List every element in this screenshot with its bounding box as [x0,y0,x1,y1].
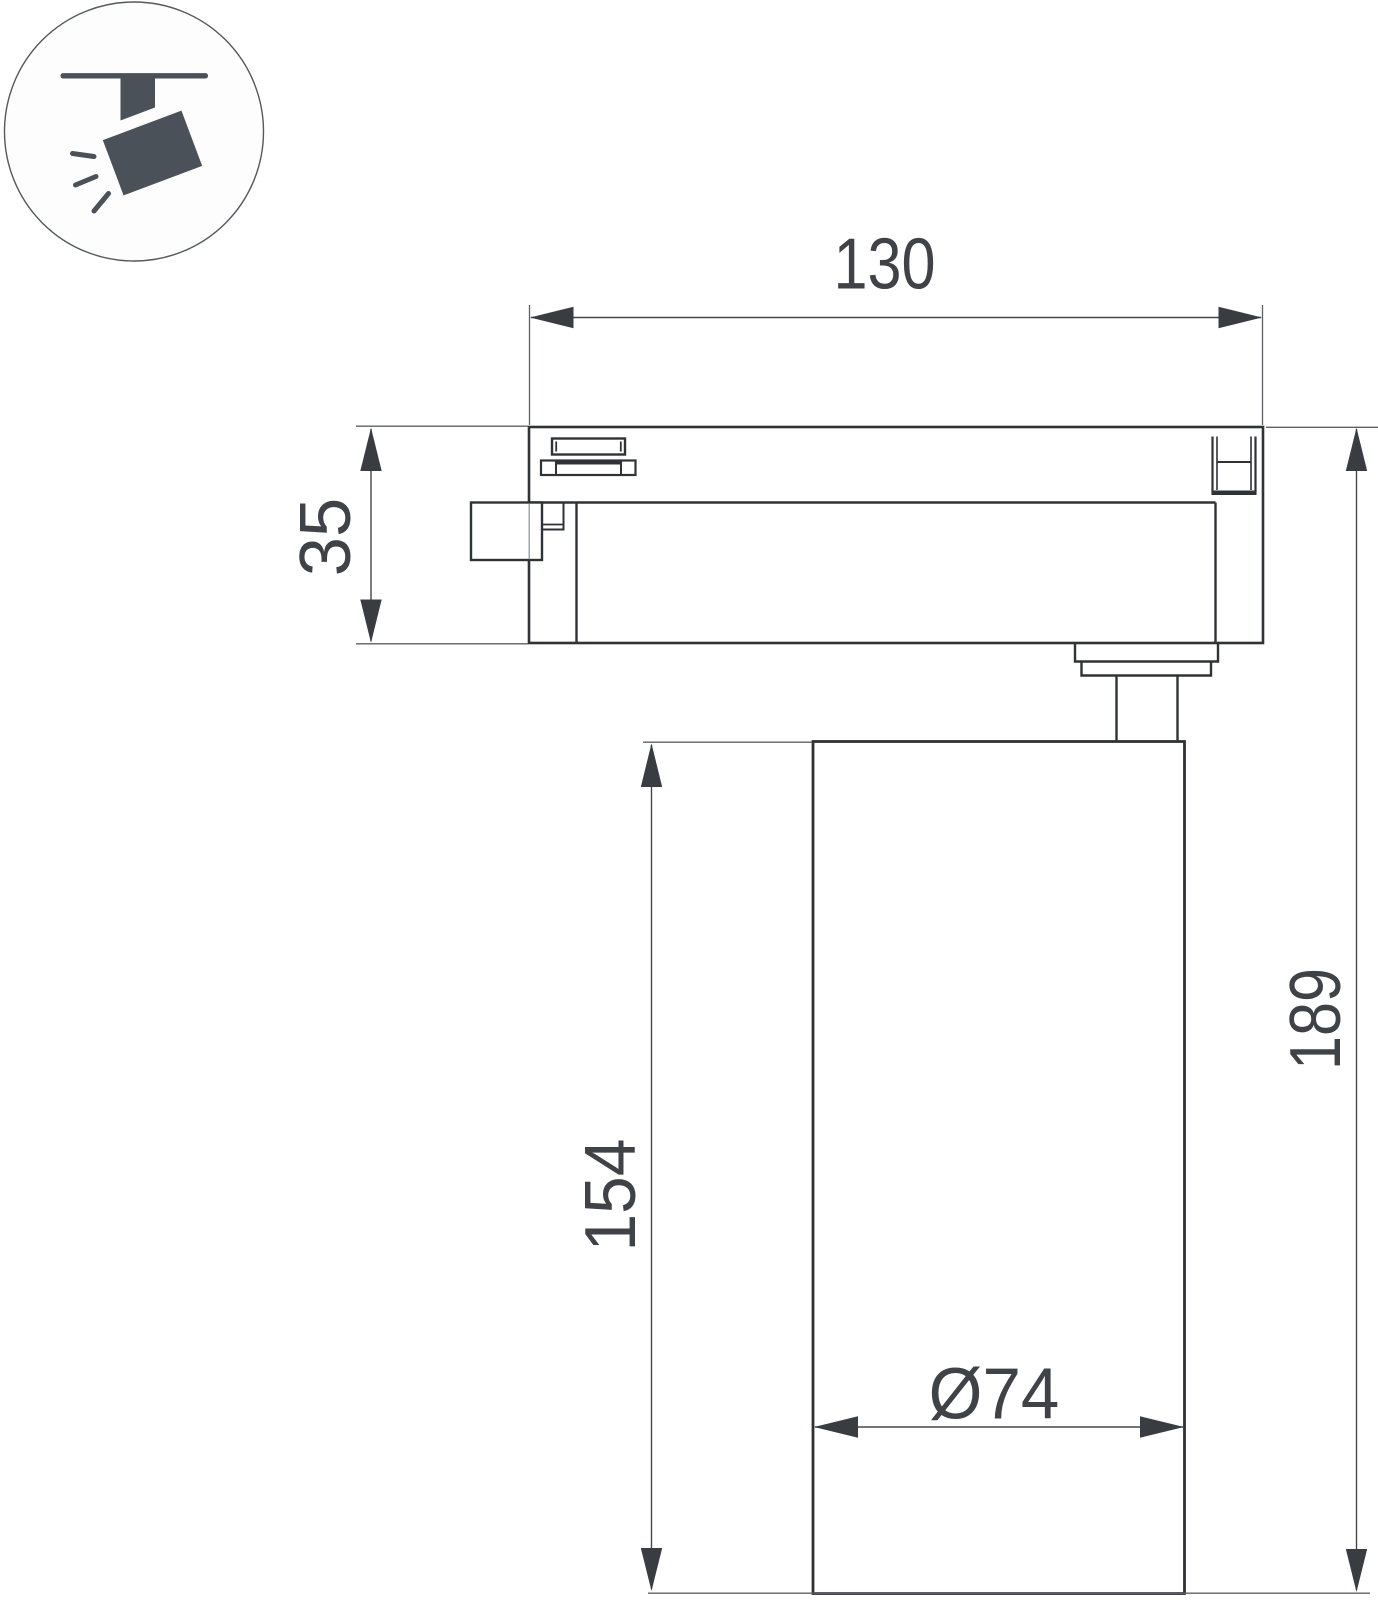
svg-text:Ø74: Ø74 [929,1353,1060,1434]
svg-text:154: 154 [570,1139,650,1252]
svg-text:189: 189 [1276,968,1356,1070]
svg-text:35: 35 [285,498,366,576]
svg-text:130: 130 [833,225,935,305]
